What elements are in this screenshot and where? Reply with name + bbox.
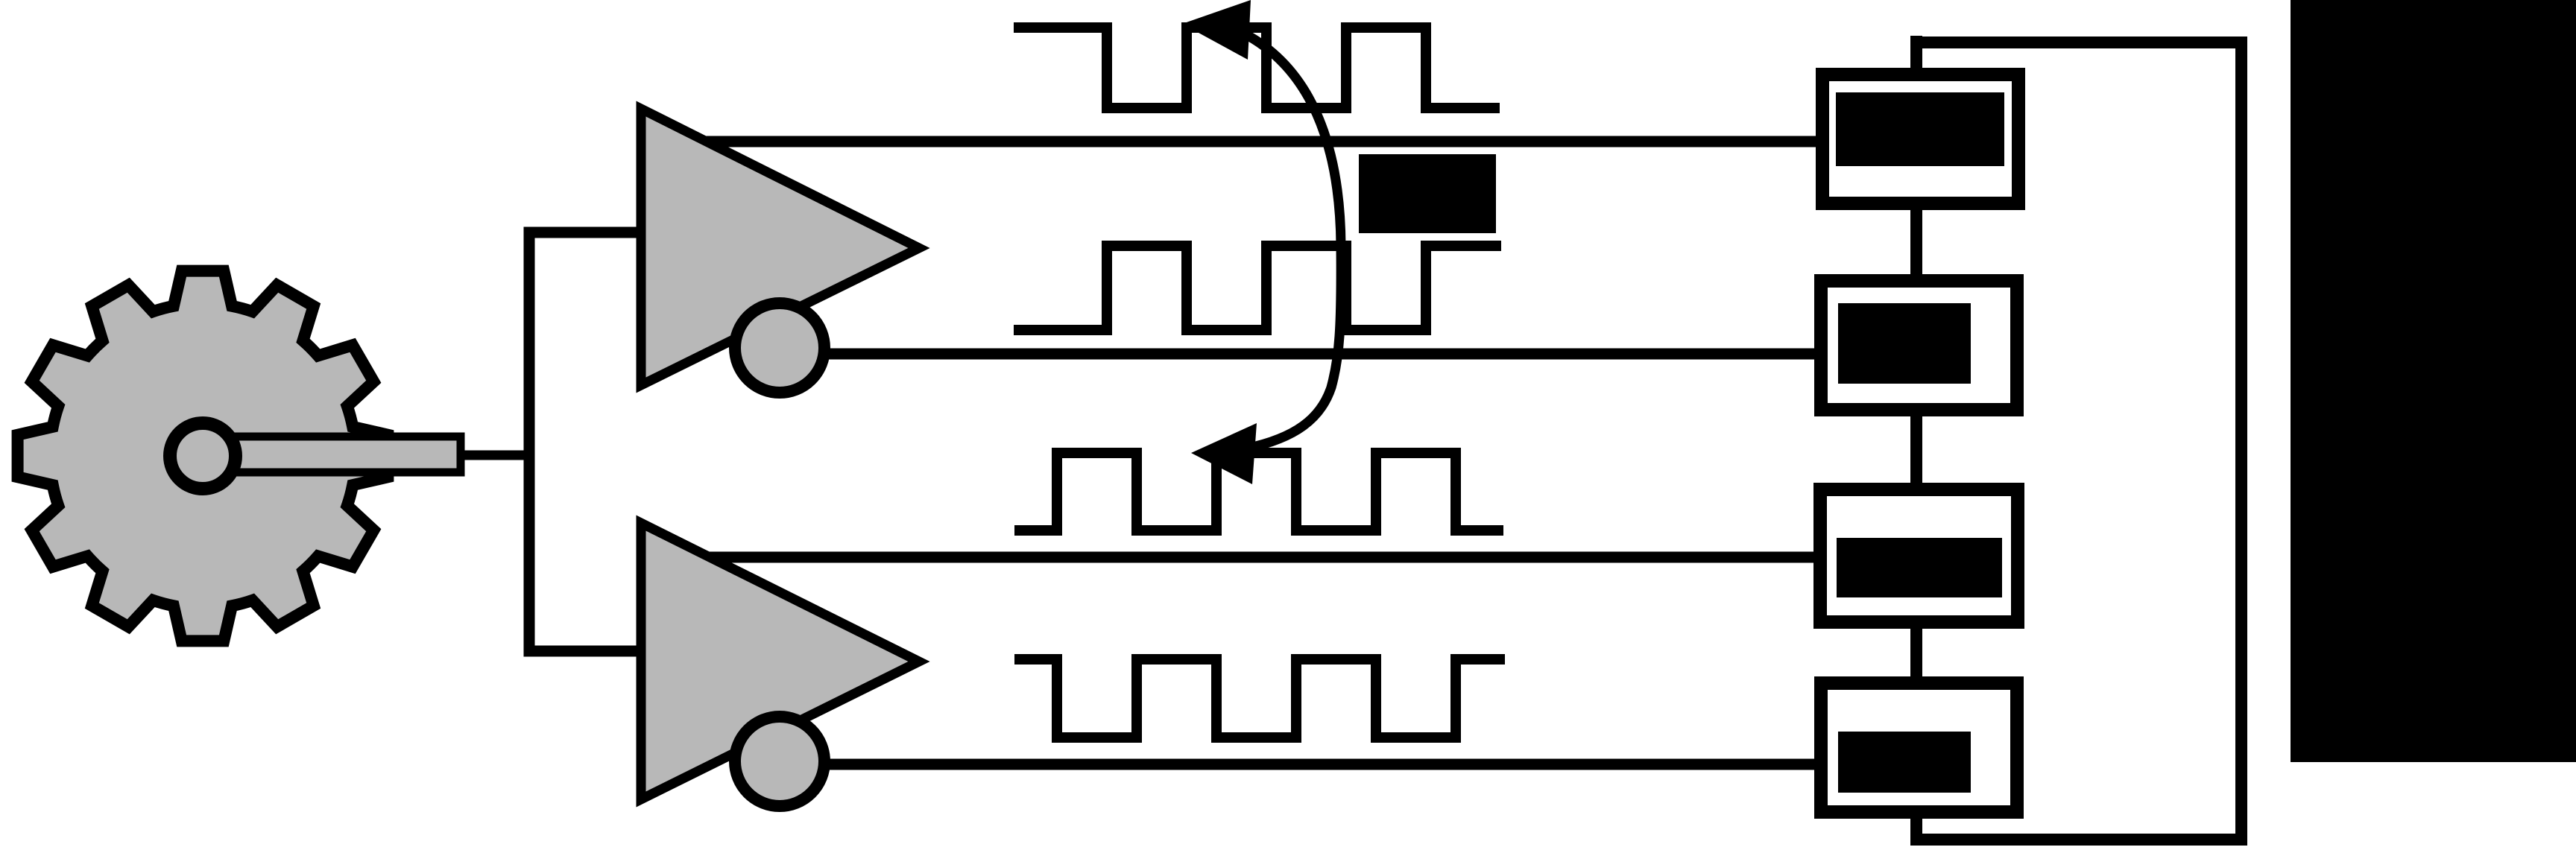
gear-hub xyxy=(170,423,236,489)
detector-box-4-redacted-label xyxy=(1838,732,1971,793)
gear-shaft xyxy=(224,437,461,472)
redacted-label xyxy=(1359,154,1496,233)
phase-arrow-head-bottom xyxy=(1191,423,1257,484)
waveform-channel-a-inverted xyxy=(1019,246,1496,330)
diagram-svg xyxy=(0,0,2576,850)
waveform-channel-b-inverted xyxy=(1020,659,1500,738)
detector-box-1-redacted-label xyxy=(1836,92,2004,166)
input-bracket xyxy=(529,232,640,651)
diagram-page xyxy=(0,0,2576,850)
detector-box-2-redacted-label xyxy=(1838,303,1971,384)
waveform-channel-b xyxy=(1020,453,1498,530)
detector-box-3-redacted-label xyxy=(1837,538,2002,597)
comparator-a-inversion-bubble xyxy=(735,303,824,393)
comparator-b-inversion-bubble xyxy=(735,717,824,806)
side-panel-block xyxy=(2291,0,2576,762)
